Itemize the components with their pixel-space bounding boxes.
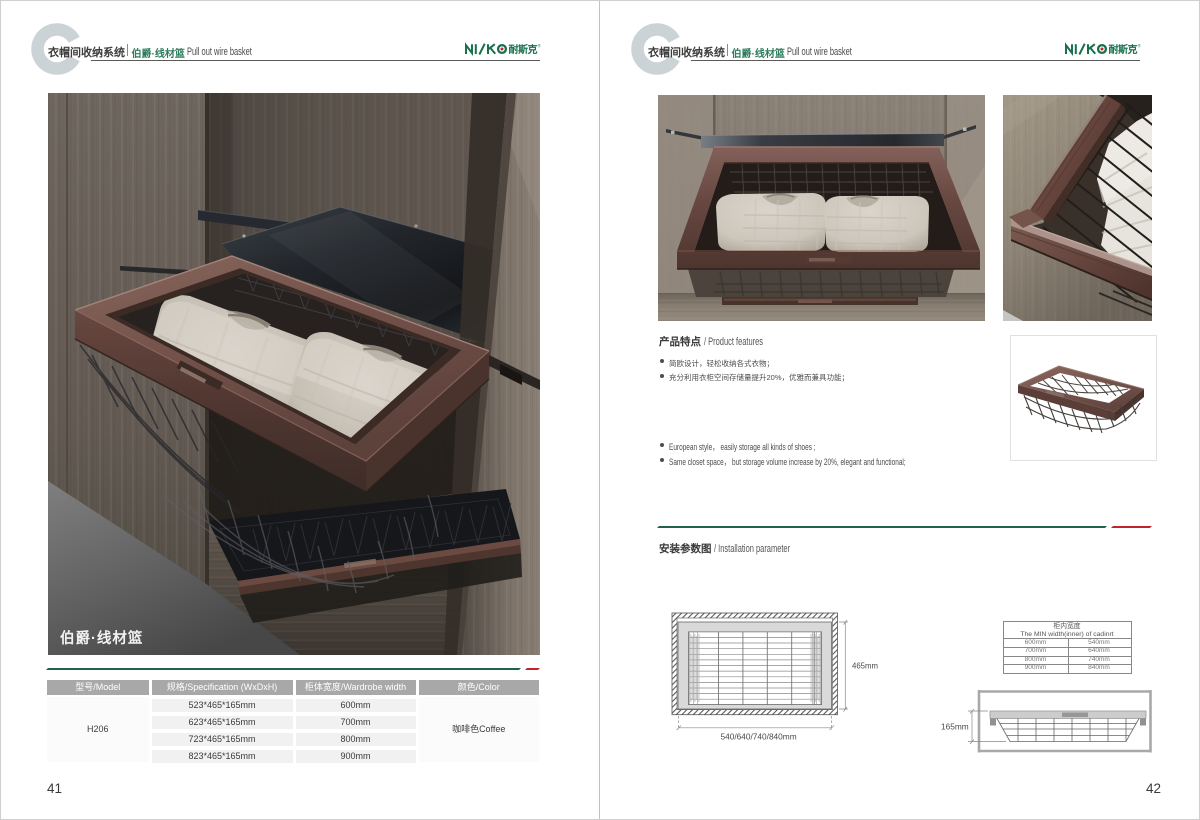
svg-text:伯爵·线材篮: 伯爵·线材篮 xyxy=(60,629,143,647)
svg-text:耐斯克: 耐斯克 xyxy=(1109,43,1138,56)
svg-text:540/640/740/840mm: 540/640/740/840mm xyxy=(721,732,797,742)
svg-text:465mm: 465mm xyxy=(852,662,878,671)
svg-text:®: ® xyxy=(538,43,542,49)
svg-text:®: ® xyxy=(1138,43,1142,49)
svg-text:165mm: 165mm xyxy=(941,722,969,732)
svg-text:耐斯克: 耐斯克 xyxy=(509,43,538,56)
